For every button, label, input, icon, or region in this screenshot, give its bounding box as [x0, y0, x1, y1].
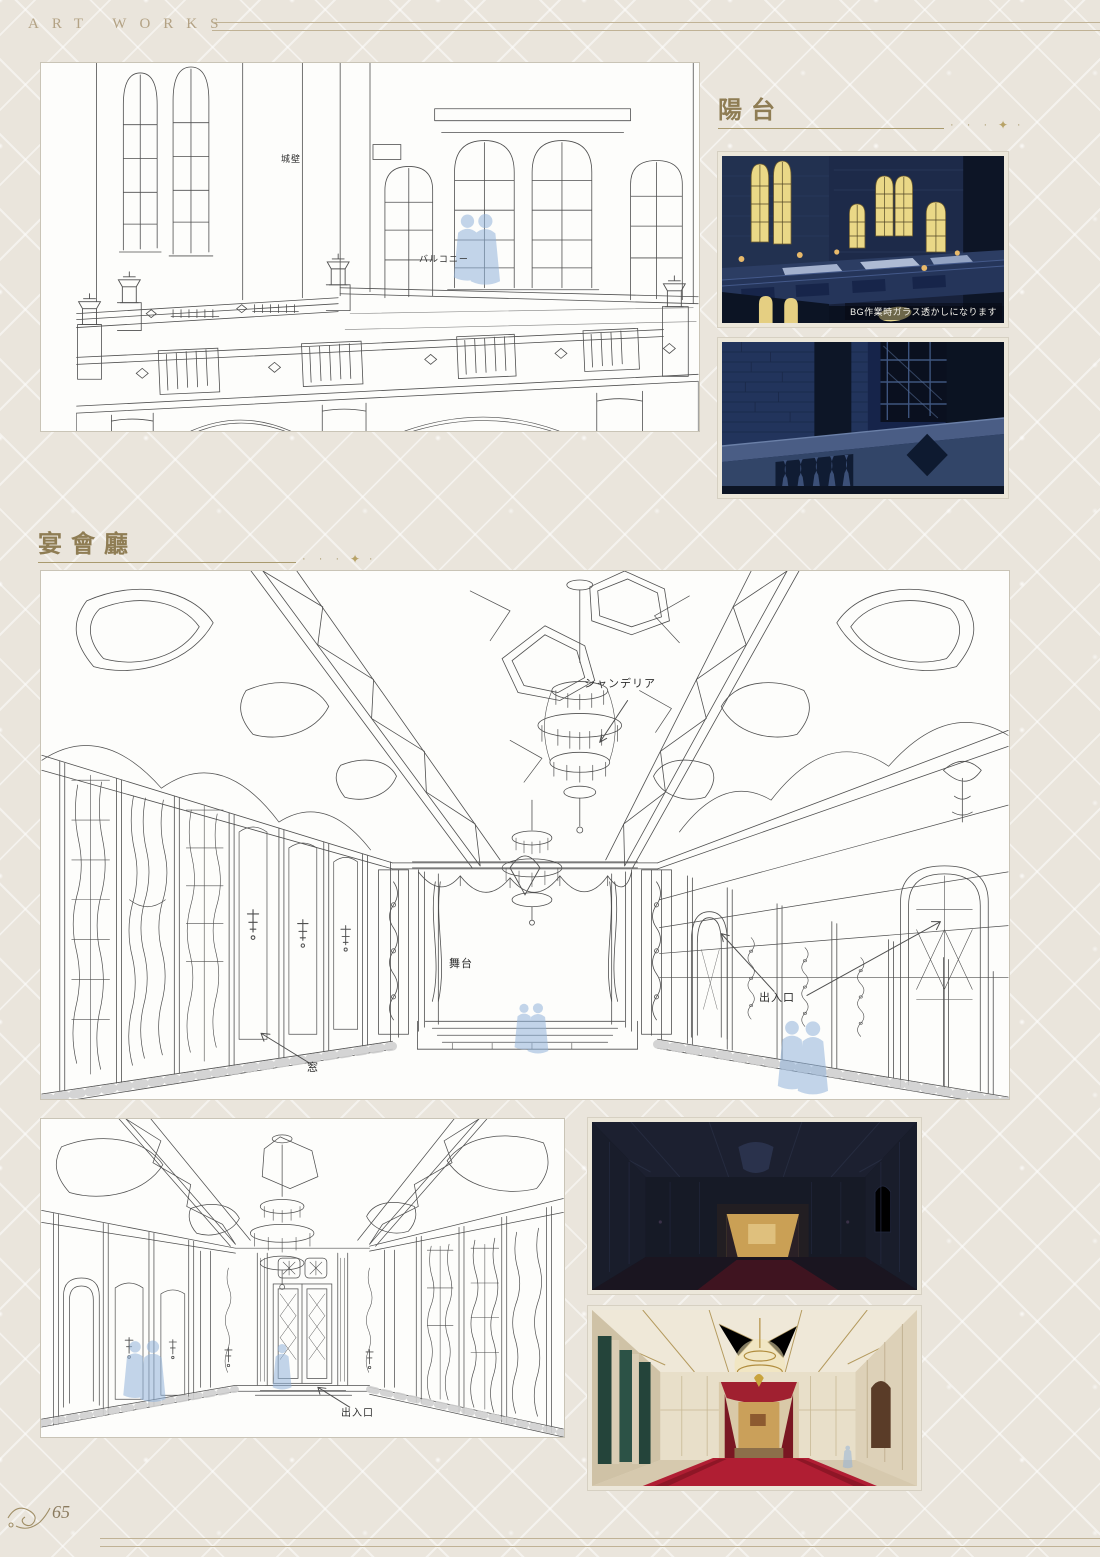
- diamond-icon: ✦: [350, 552, 360, 566]
- header-rule: [212, 22, 1100, 31]
- page-number: 65: [52, 1502, 70, 1523]
- balcony-parapet-screenshot: [718, 338, 1008, 498]
- banquet-dark-screenshot: [588, 1118, 921, 1294]
- diamond-icon: ✦: [998, 118, 1008, 132]
- banquet-lit-screenshot: [588, 1306, 921, 1490]
- window-label: 窓: [307, 1063, 319, 1074]
- banquet-dark-image: [592, 1122, 917, 1290]
- balcony-night-screenshot: BG作業時ガラス透かしになります: [718, 152, 1008, 327]
- chandelier-label: シャンデリア: [584, 679, 656, 690]
- section-title-banquet: 宴會廳: [38, 524, 137, 559]
- stage-label: 舞台: [449, 959, 473, 970]
- banquet-title-dots: · · · · ·: [302, 553, 378, 565]
- balcony-lineart: [41, 63, 699, 431]
- section-title-balcony: 陽台: [718, 90, 784, 125]
- banquet-title-rule: [38, 562, 296, 563]
- footer-rule: [100, 1538, 1100, 1547]
- balcony-lineart-panel: 城壁 バルコニー: [40, 62, 700, 432]
- castle-wall-label: 城壁: [281, 155, 301, 164]
- banquet-lineart-panel: シャンデリア 舞台 出入口 窓: [40, 570, 1010, 1100]
- screenshot-caption: BG作業時ガラス透かしになります: [845, 303, 1002, 320]
- entrance-label: 出入口: [759, 993, 795, 1004]
- banquet-reverse-lineart: [41, 1119, 564, 1437]
- flourish-ornament: [6, 1498, 52, 1532]
- balcony-label: バルコニー: [419, 255, 469, 264]
- banquet-lit-image: [592, 1310, 917, 1486]
- artbook-page: ART WORKS: [0, 0, 1100, 1557]
- artworks-header: ART WORKS: [28, 16, 231, 33]
- balcony-title-dots: · · · · ·: [950, 119, 1026, 131]
- balcony-parapet-image: [722, 342, 1004, 494]
- balcony-title-rule: [718, 128, 944, 129]
- banquet-reverse-lineart-panel: 出入口: [40, 1118, 565, 1438]
- entrance-label: 出入口: [341, 1409, 374, 1419]
- balcony-night-image: [722, 156, 1004, 323]
- banquet-lineart: [41, 571, 1009, 1099]
